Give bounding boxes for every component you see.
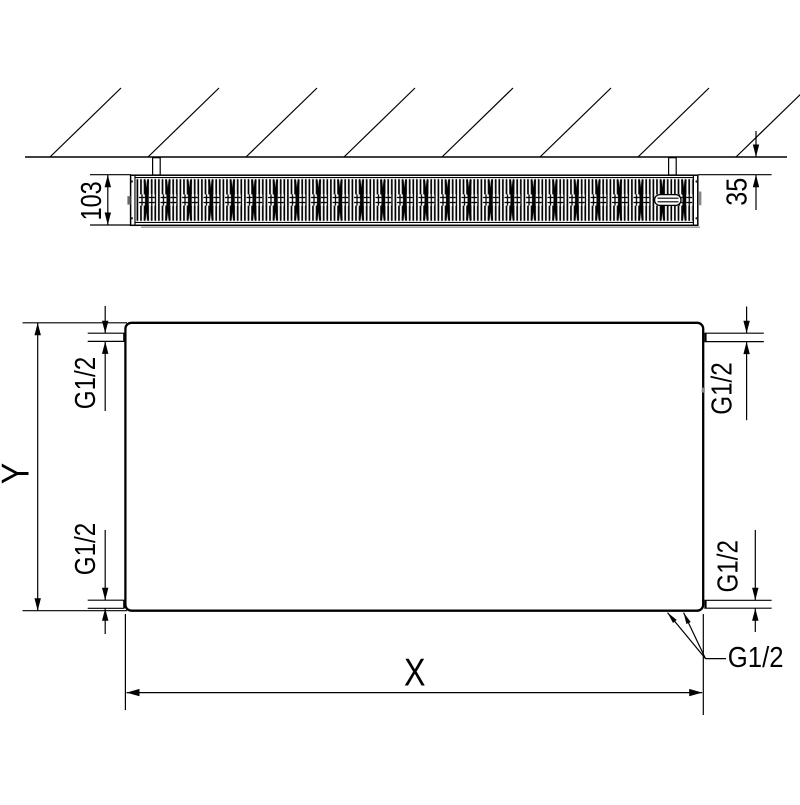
svg-text:Y: Y <box>0 463 38 485</box>
svg-text:G1/2: G1/2 <box>728 642 784 674</box>
svg-text:G1/2: G1/2 <box>712 540 744 593</box>
svg-text:35: 35 <box>722 178 754 206</box>
svg-text:X: X <box>404 652 426 695</box>
svg-text:103: 103 <box>76 181 108 220</box>
svg-text:G1/2: G1/2 <box>70 523 102 576</box>
svg-text:G1/2: G1/2 <box>707 362 739 415</box>
svg-text:G1/2: G1/2 <box>70 357 102 410</box>
